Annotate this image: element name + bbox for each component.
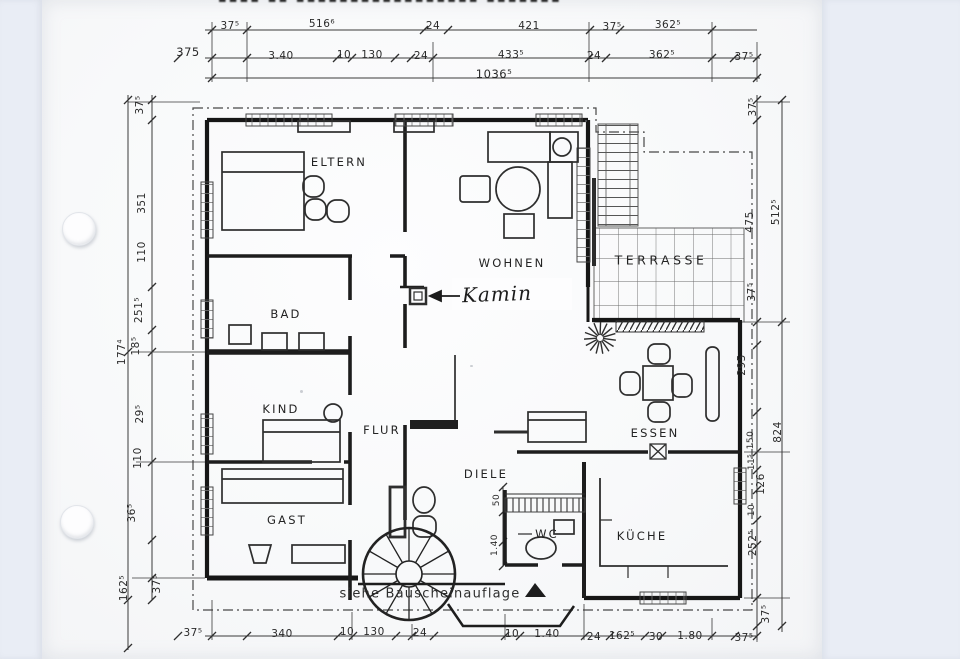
wohnen-furniture — [460, 132, 578, 238]
plant-icon — [584, 322, 616, 354]
basement-stairs — [505, 498, 585, 512]
wall-box — [650, 444, 666, 459]
kamin-fireplace — [410, 288, 426, 304]
interior-walls — [207, 120, 740, 626]
kueche-fixtures — [600, 478, 728, 578]
curtain-bar — [592, 178, 596, 266]
dimension-lines — [124, 22, 790, 652]
terrace-tiles — [594, 124, 744, 322]
bad-fixtures — [229, 325, 324, 350]
roof-overhang-outline — [193, 108, 752, 610]
exterior-walls — [207, 120, 740, 598]
essen-furniture — [584, 321, 719, 459]
scan-speck — [585, 120, 587, 122]
whiteout-patch — [452, 278, 572, 310]
scanned-floor-plan-page: ELTERNWOHNENTERRASSEBADKINDFLURDIELEESSE… — [0, 0, 960, 659]
scan-speck — [470, 365, 473, 367]
kind-furniture — [263, 404, 342, 462]
radiator-hatch — [616, 321, 704, 332]
floor-plan-drawing — [0, 0, 960, 659]
scan-speck — [300, 390, 303, 393]
gast-furniture — [222, 469, 345, 563]
eltern-furniture — [222, 121, 434, 230]
north-triangle — [525, 583, 546, 597]
wc-fixtures — [505, 494, 585, 559]
cropped-document-title: ▪▪▪▪ ▪▪ ▪▪▪▪▪▪▪▪▪▪▪▪▪▪▪▪▪ ▪▪▪▪▪▪▪ — [218, 0, 562, 6]
windows — [201, 114, 746, 604]
spiral-staircase — [363, 528, 455, 620]
